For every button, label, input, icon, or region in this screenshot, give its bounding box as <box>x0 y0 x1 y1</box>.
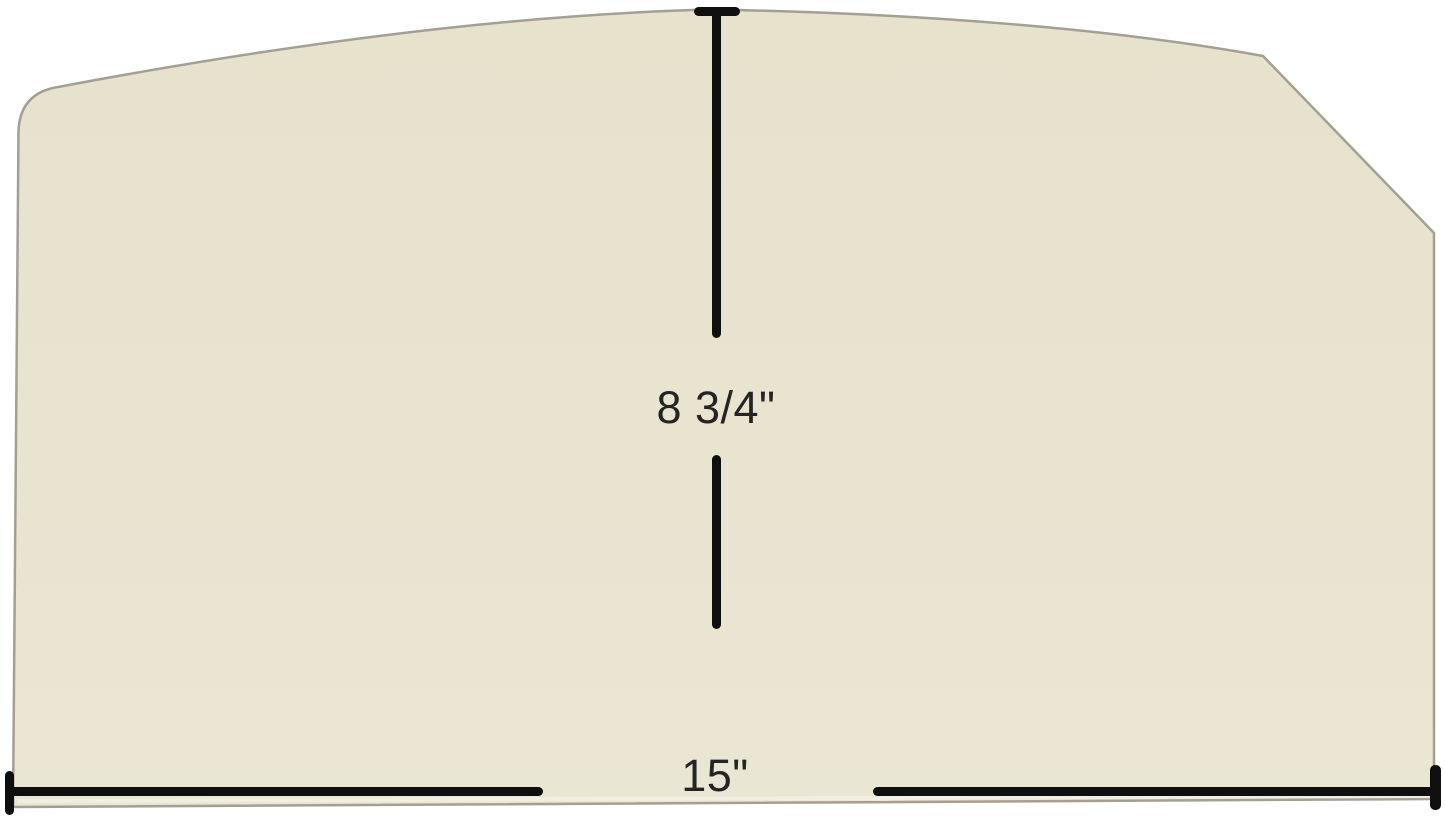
width-dimension-line-left <box>7 787 543 796</box>
width-dimension-right-cap <box>1430 765 1441 810</box>
width-dimension-label: 15" <box>565 753 865 798</box>
width-dimension-line-right <box>873 787 1434 796</box>
height-dimension-label: 8 3/4" <box>566 385 866 430</box>
height-dimension-line-lower <box>712 455 721 629</box>
product-image: 8 3/4" 15" <box>0 0 1445 823</box>
height-dimension-line-upper <box>712 8 721 338</box>
